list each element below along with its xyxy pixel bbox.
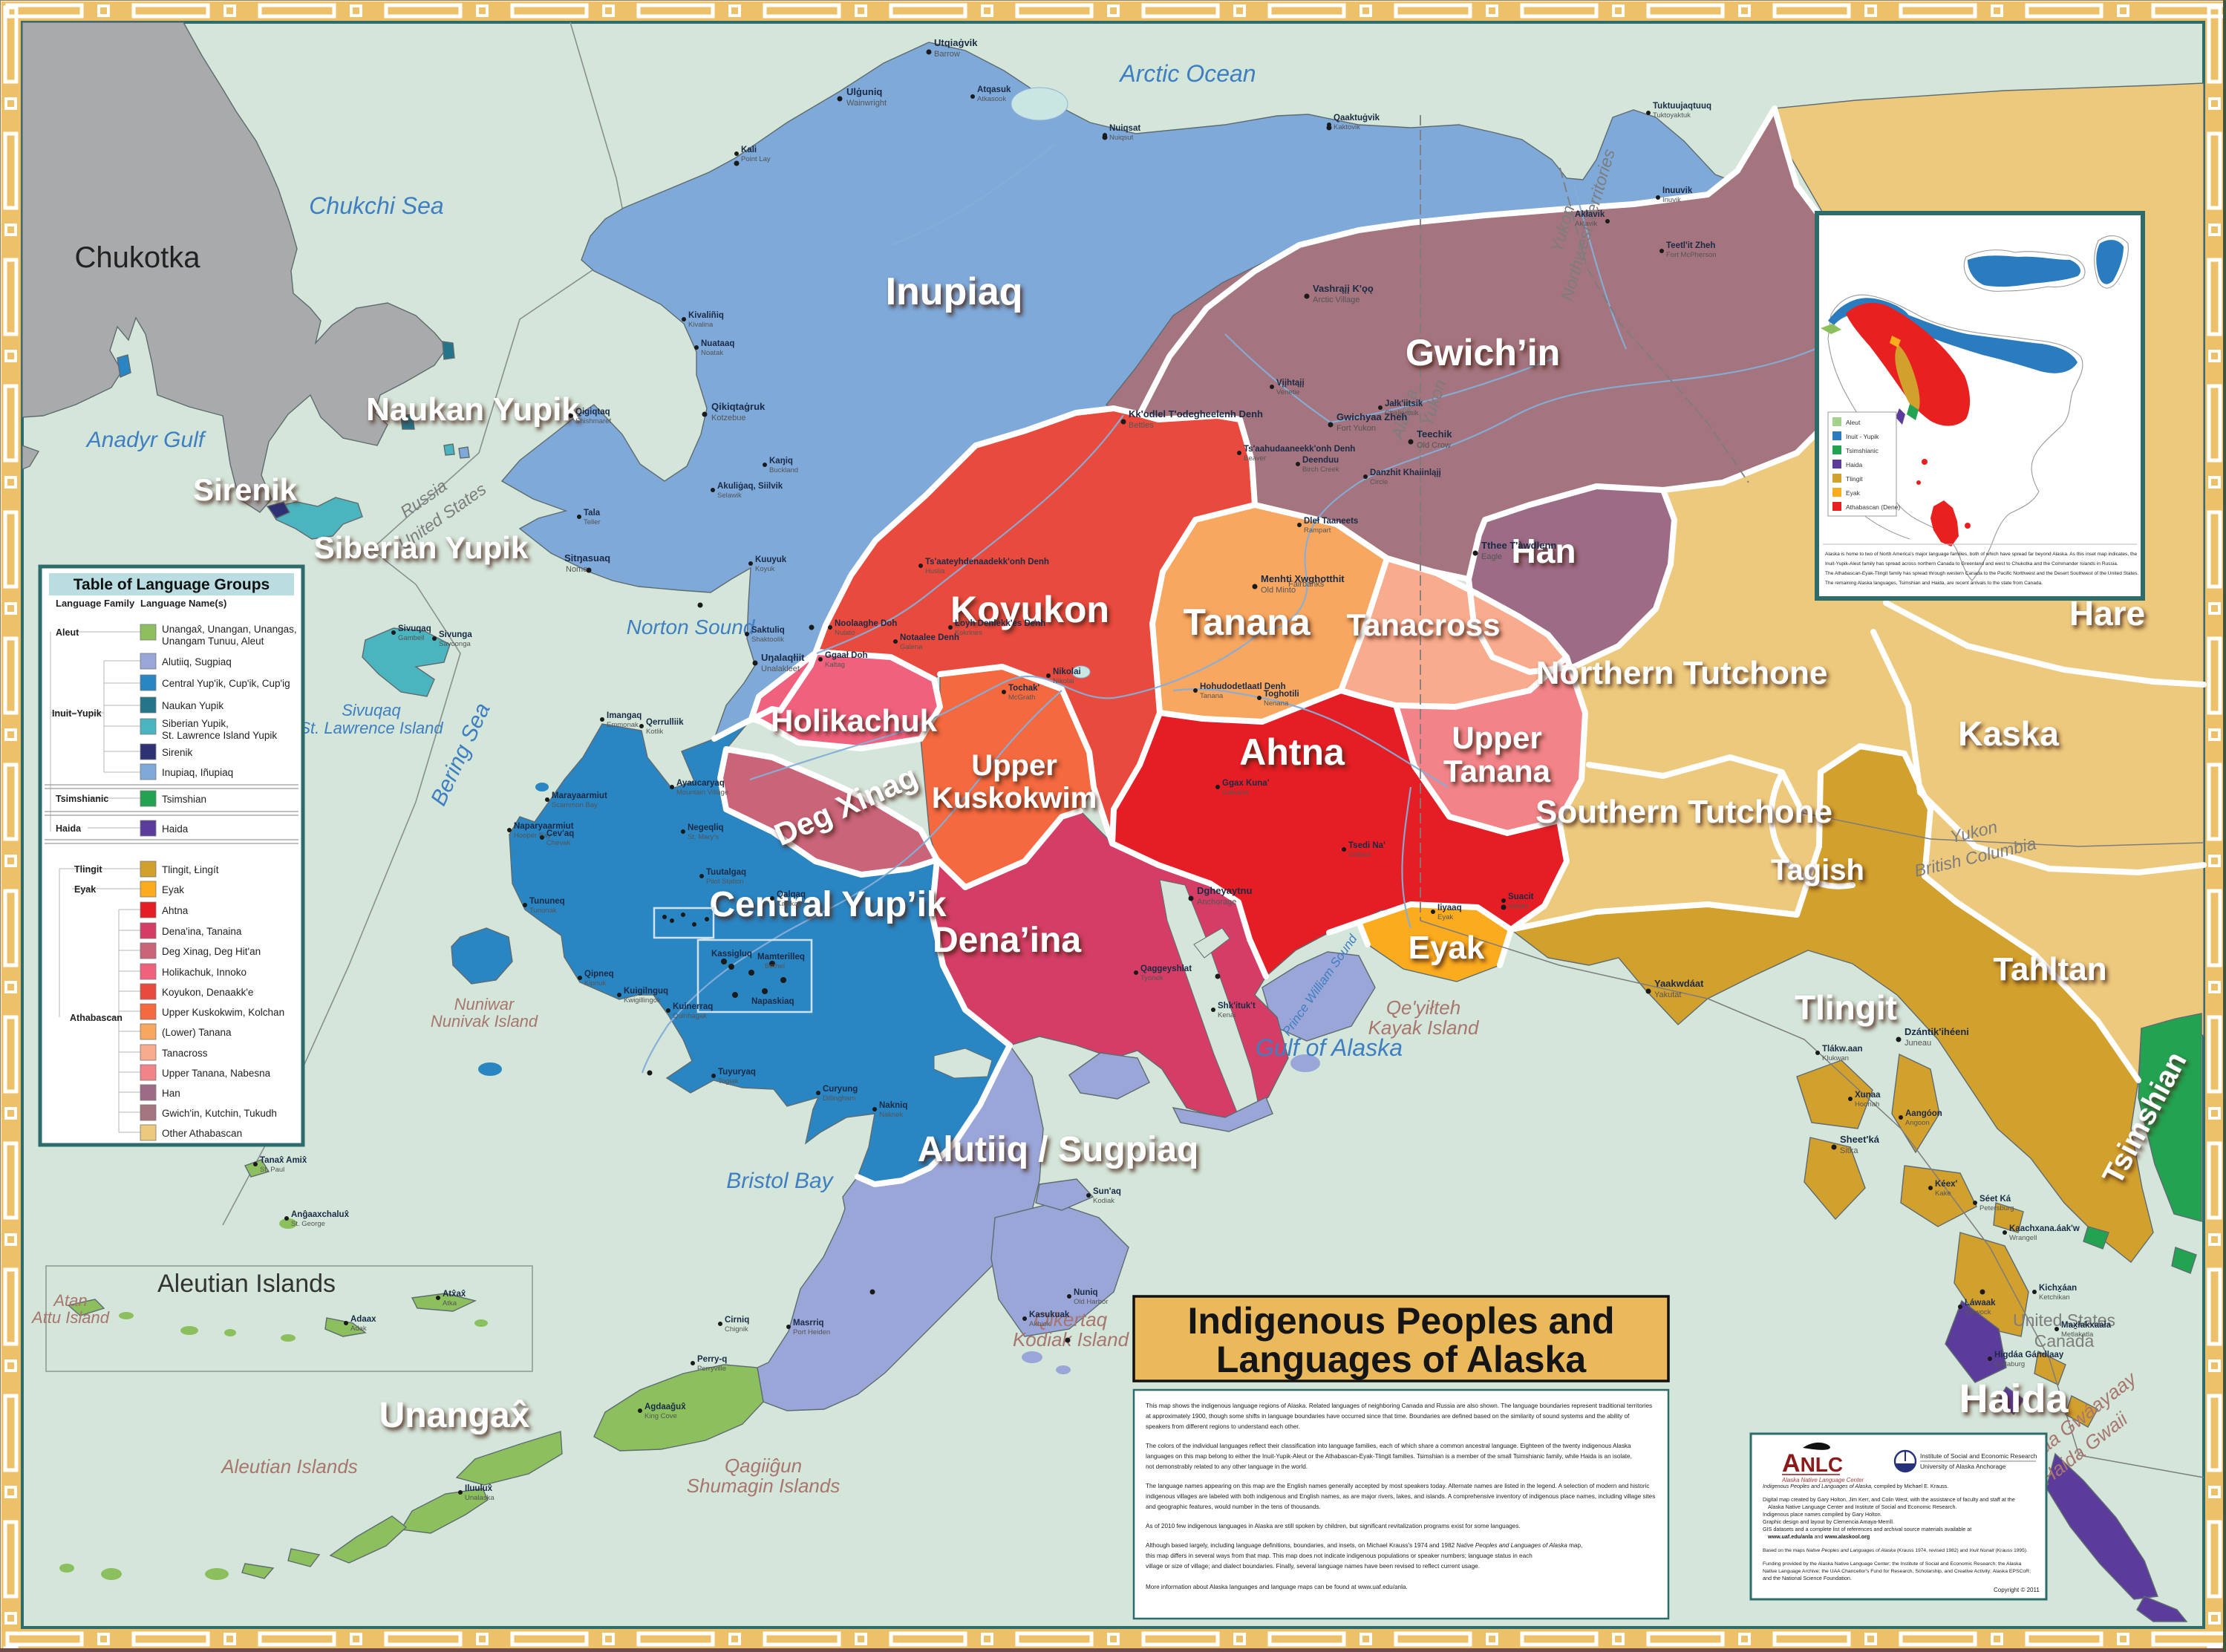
svg-text:Kichx̱áan: Kichx̱áan <box>2039 1284 2077 1293</box>
svg-text:Based on the maps Native Peopl: Based on the maps Native Peoples and Lan… <box>1763 1548 2028 1553</box>
svg-text:Yakutat: Yakutat <box>1654 990 1682 999</box>
svg-text:Aleutian Islands: Aleutian Islands <box>157 1270 336 1298</box>
svg-text:Copyright © 2011: Copyright © 2011 <box>1994 1587 2040 1593</box>
svg-text:Nunivak Island: Nunivak Island <box>431 1012 538 1031</box>
svg-text:Athabascan (Dene): Athabascan (Dene) <box>1846 503 1900 511</box>
svg-text:Kaachxana.áak'w: Kaachxana.áak'w <box>2009 1224 2080 1233</box>
svg-text:Noolaaghe Doh: Noolaaghe Doh <box>835 619 897 628</box>
svg-text:Eagle: Eagle <box>1481 552 1502 561</box>
svg-text:Tlingit: Tlingit <box>1795 988 1897 1027</box>
svg-text:Kk'odlel T'odegheelenh Denh: Kk'odlel T'odegheelenh Denh <box>1129 408 1263 419</box>
svg-text:Tanana: Tanana <box>1443 754 1551 789</box>
svg-text:Teetl'it Zheh: Teetl'it Zheh <box>1666 241 1715 250</box>
svg-text:Utqiaġvik: Utqiaġvik <box>934 37 978 48</box>
svg-text:Tsedi Na': Tsedi Na' <box>1348 841 1385 850</box>
svg-text:Nuniwar: Nuniwar <box>454 995 515 1013</box>
svg-text:Upper: Upper <box>1452 720 1541 755</box>
svg-text:Vashrąįį K'ǫǫ: Vashrąįį K'ǫǫ <box>1313 283 1374 294</box>
svg-text:Venetie: Venetie <box>1276 388 1300 396</box>
svg-text:Ahtna: Ahtna <box>162 905 189 916</box>
svg-text:Tanacross: Tanacross <box>1347 607 1501 642</box>
svg-text:this map differs in several wa: this map differs in several ways from th… <box>1146 1553 1533 1559</box>
svg-text:Northern Tutchone: Northern Tutchone <box>1536 655 1828 691</box>
svg-text:Noatak: Noatak <box>701 349 723 357</box>
svg-text:Native Language Archive; the U: Native Language Archive; the UAA Chancel… <box>1763 1569 2031 1574</box>
svg-text:Sheet'ká: Sheet'ká <box>1840 1134 1880 1145</box>
svg-text:Togiak: Togiak <box>718 1077 739 1085</box>
svg-text:Kaltag: Kaltag <box>825 661 845 669</box>
svg-text:St. Lawrence Island: St. Lawrence Island <box>299 719 443 737</box>
svg-text:University of Alaska Anchorage: University of Alaska Anchorage <box>1920 1463 2006 1470</box>
svg-text:Sivunga: Sivunga <box>439 630 472 639</box>
svg-text:Nome: Nome <box>566 565 587 574</box>
svg-text:Tochak': Tochak' <box>1008 684 1039 693</box>
svg-text:Although based largely, includ: Although based largely, including langua… <box>1146 1542 1582 1549</box>
svg-text:Kali: Kali <box>741 146 757 154</box>
svg-text:Kassigluq: Kassigluq <box>711 950 752 959</box>
svg-text:Tuktuujaqtuuq: Tuktuujaqtuuq <box>1653 102 1711 111</box>
svg-text:As of 2010 few indigenous lang: As of 2010 few indigenous languages in A… <box>1146 1523 1521 1529</box>
svg-text:Fairbanks: Fairbanks <box>1288 580 1325 589</box>
svg-text:The Athabascan-Eyak-Tlingit fa: The Athabascan-Eyak-Tlingit family has s… <box>1825 571 2138 576</box>
svg-text:Kokrines: Kokrines <box>955 629 982 637</box>
svg-text:Tanax̂ Amix̂: Tanax̂ Amix̂ <box>260 1156 307 1165</box>
svg-text:Old Crow: Old Crow <box>1417 441 1451 450</box>
svg-text:Chukotka: Chukotka <box>75 241 201 274</box>
svg-text:Graphic design and layout by C: Graphic design and layout by Clemencia A… <box>1763 1518 1894 1525</box>
svg-text:Ketchikan: Ketchikan <box>2039 1293 2070 1302</box>
svg-text:Buckland: Buckland <box>769 466 798 474</box>
svg-text:Napaskiaq: Napaskiaq <box>751 997 794 1006</box>
svg-text:Dena'ina, Tanaina: Dena'ina, Tanaina <box>162 926 242 937</box>
svg-text:Tagish: Tagish <box>1771 854 1864 887</box>
svg-text:Digital map created by Gary Ho: Digital map created by Gary Holton, Jim … <box>1763 1496 2015 1503</box>
svg-text:Ggaał Doh: Ggaał Doh <box>825 651 868 660</box>
svg-text:Eyak: Eyak <box>1846 489 1861 497</box>
svg-text:Kuigilnguq: Kuigilnguq <box>624 987 668 996</box>
svg-text:Tununeq: Tununeq <box>529 897 565 906</box>
svg-text:Sirenik: Sirenik <box>162 747 193 758</box>
svg-text:Atqasuk: Atqasuk <box>977 85 1011 94</box>
svg-text:Hooper Bay: Hooper Bay <box>514 832 551 840</box>
svg-text:Nuiqsat: Nuiqsat <box>1109 124 1140 133</box>
svg-text:This map shows the indigenous: This map shows the indigenous language r… <box>1146 1403 1652 1409</box>
svg-text:Tununak: Tununak <box>529 907 557 915</box>
svg-text:village or size of village; an: village or size of village; and dialect … <box>1146 1563 1480 1570</box>
svg-text:Perryville: Perryville <box>697 1365 726 1373</box>
svg-text:Tlákw.aan: Tlákw.aan <box>1822 1045 1863 1054</box>
svg-text:Central Yup’ik: Central Yup’ik <box>709 885 947 924</box>
svg-text:Sivuqaq: Sivuqaq <box>398 624 431 633</box>
svg-text:St. George: St. George <box>291 1220 325 1228</box>
svg-text:Negeqliq: Negeqliq <box>688 823 724 832</box>
svg-text:Kaktovik: Kaktovik <box>1334 123 1360 131</box>
svg-text:Dzántik'ihéeni: Dzántik'ihéeni <box>1904 1026 1969 1037</box>
svg-text:Unalaska: Unalaska <box>465 1494 495 1502</box>
svg-text:Indigenous Peoples and Languag: Indigenous Peoples and Languages of Alas… <box>1763 1483 1948 1489</box>
svg-text:Kéex': Kéex' <box>1935 1180 1957 1189</box>
svg-text:Deenduu: Deenduu <box>1302 456 1339 465</box>
svg-text:The remaining Alaska languages: The remaining Alaska languages, Tsimshia… <box>1825 581 2043 586</box>
svg-text:Anchorage: Anchorage <box>1197 898 1236 907</box>
svg-text:Kake: Kake <box>1935 1189 1951 1198</box>
svg-text:Kipnuk: Kipnuk <box>584 979 606 987</box>
svg-text:Séet Ká: Séet Ká <box>1979 1195 2011 1204</box>
svg-text:Selawik: Selawik <box>717 492 742 500</box>
svg-text:Qikiqtaġruk: Qikiqtaġruk <box>711 401 766 412</box>
svg-text:Teechik: Teechik <box>1417 428 1452 440</box>
svg-text:Old Harbor: Old Harbor <box>1074 1298 1108 1306</box>
svg-text:Tsimshianic: Tsimshianic <box>1846 447 1879 454</box>
svg-text:Mountain Village: Mountain Village <box>676 789 728 797</box>
svg-text:Mamterilleq: Mamterilleq <box>757 953 805 962</box>
svg-text:Kuskokwim: Kuskokwim <box>932 782 1097 814</box>
svg-text:Teller: Teller <box>584 518 601 526</box>
svg-text:Sitŋasuaq: Sitŋasuaq <box>564 552 610 564</box>
svg-text:Qigiqtaq: Qigiqtaq <box>575 408 610 417</box>
svg-text:Qaaktuġvik: Qaaktuġvik <box>1334 114 1380 123</box>
svg-text:Wrangell: Wrangell <box>2009 1234 2037 1242</box>
svg-text:Tsimshianic: Tsimshianic <box>56 794 108 804</box>
svg-text:Kotlik: Kotlik <box>646 728 663 736</box>
svg-text:Tthee T'àwdlenn: Tthee T'àwdlenn <box>1481 540 1556 551</box>
svg-text:Petersburg: Petersburg <box>1979 1204 2014 1212</box>
svg-text:The colors of the individual l: The colors of the individual languages r… <box>1146 1443 1631 1449</box>
svg-text:Kivaliñiq: Kivaliñiq <box>688 311 724 320</box>
svg-text:Tahltan: Tahltan <box>1993 951 2106 987</box>
svg-text:Unangax̂, Unangan, Unangas,: Unangax̂, Unangan, Unangas, <box>162 624 297 635</box>
svg-text:Aklavik: Aklavik <box>1575 220 1597 228</box>
svg-text:Pilot Station: Pilot Station <box>706 878 744 886</box>
svg-text:Norton Sound: Norton Sound <box>627 616 756 639</box>
svg-text:Gambell: Gambell <box>398 634 424 642</box>
svg-text:languages on this map belong t: languages on this map belong to either t… <box>1146 1453 1632 1460</box>
svg-text:Koyukon, Denaakk'e: Koyukon, Denaakk'e <box>162 987 253 998</box>
svg-text:Chalkyitsik: Chalkyitsik <box>1385 409 1419 417</box>
svg-text:Chukchi Sea: Chukchi Sea <box>309 192 443 219</box>
svg-text:Chignik: Chignik <box>725 1325 748 1333</box>
svg-text:Kasukuak: Kasukuak <box>1029 1310 1070 1319</box>
svg-text:Dleł Taaneets: Dleł Taaneets <box>1304 517 1358 526</box>
svg-text:Inupiaq, Iñupiaq: Inupiaq, Iñupiaq <box>162 767 233 778</box>
svg-text:Tuutalgaq: Tuutalgaq <box>706 868 746 877</box>
svg-text:Inuit-Yupik-Aleut family has s: Inuit-Yupik-Aleut family has spread acro… <box>1825 561 2118 567</box>
svg-text:Shk'ituk't: Shk'ituk't <box>1218 1002 1256 1011</box>
svg-text:Valdez: Valdez <box>1508 902 1530 910</box>
svg-text:Nuniq: Nuniq <box>1074 1288 1098 1297</box>
svg-text:St. Mary's: St. Mary's <box>688 833 719 841</box>
svg-text:Bettles: Bettles <box>1129 421 1154 430</box>
svg-text:Juneau: Juneau <box>1904 1039 1931 1048</box>
svg-text:Nuiqsut: Nuiqsut <box>1109 134 1134 142</box>
svg-text:Gwich'in, Kutchin, Tukudh: Gwich'in, Kutchin, Tukudh <box>162 1108 277 1119</box>
svg-text:at approximately 1900, though: at approximately 1900, though some shift… <box>1146 1413 1630 1420</box>
svg-text:(Lower) Tanana: (Lower) Tanana <box>162 1027 232 1038</box>
svg-text:Emmonak: Emmonak <box>607 721 639 729</box>
svg-text:Upper: Upper <box>971 749 1057 782</box>
svg-text:Klawock: Klawock <box>1965 1308 1991 1316</box>
svg-text:Athabascan: Athabascan <box>70 1013 123 1023</box>
svg-text:Qe'yiłteh: Qe'yiłteh <box>1386 996 1460 1019</box>
svg-text:indigenous villages are labele: indigenous villages are labeled with bot… <box>1146 1493 1655 1500</box>
svg-text:Eyak: Eyak <box>74 884 96 895</box>
svg-text:Holikachuk: Holikachuk <box>771 703 938 738</box>
svg-text:Other Athabascan: Other Athabascan <box>162 1128 242 1139</box>
svg-text:Fort Yukon: Fort Yukon <box>1336 424 1376 433</box>
svg-text:Shishmaref: Shishmaref <box>575 417 611 425</box>
svg-text:Tlingit: Tlingit <box>1846 475 1863 483</box>
svg-text:Nikolai: Nikolai <box>1053 667 1081 676</box>
svg-text:Chevak: Chevak <box>546 839 570 847</box>
svg-text:St. Paul: St. Paul <box>260 1166 284 1174</box>
svg-text:Kaska: Kaska <box>1958 714 2059 753</box>
svg-text:Perry-q: Perry-q <box>697 1355 727 1364</box>
svg-text:Unangax̂: Unangax̂ <box>379 1396 530 1435</box>
svg-text:The language names appearing o: The language names appearing on this map… <box>1146 1483 1649 1489</box>
svg-text:Aleut: Aleut <box>56 627 79 638</box>
svg-text:Ayaucaryaq: Ayaucaryaq <box>676 779 725 788</box>
svg-text:Nenana: Nenana <box>1264 699 1289 708</box>
svg-text:Nulato: Nulato <box>835 629 855 637</box>
svg-text:Tanana: Tanana <box>1183 601 1311 643</box>
svg-text:Nakniq: Nakniq <box>879 1101 907 1110</box>
svg-text:Tanacross: Tanacross <box>162 1048 208 1059</box>
svg-text:Kalskag: Kalskag <box>777 900 802 908</box>
svg-text:Vįįhtąįį: Vįįhtąįį <box>1276 379 1305 388</box>
svg-text:Iiyaaq: Iiyaaq <box>1437 904 1462 912</box>
svg-text:Deg Xinag, Deg Hit'an: Deg Xinag, Deg Hit'an <box>162 946 261 957</box>
svg-text:Kwigillingok: Kwigillingok <box>624 996 661 1005</box>
svg-text:Alutiiq / Sugpiaq: Alutiiq / Sugpiaq <box>918 1130 1199 1169</box>
svg-text:Bristol Bay: Bristol Bay <box>726 1169 834 1193</box>
svg-text:Aleutian Islands: Aleutian Islands <box>220 1455 358 1478</box>
svg-text:Suacit: Suacit <box>1508 892 1534 901</box>
svg-text:Tala: Tala <box>584 509 601 518</box>
svg-text:Eyak: Eyak <box>1409 930 1485 966</box>
svg-text:Kenai: Kenai <box>1218 1011 1236 1019</box>
svg-text:Koyuk: Koyuk <box>755 565 775 573</box>
svg-text:Anĝaaxchalux̂: Anĝaaxchalux̂ <box>291 1210 350 1219</box>
svg-text:Upper Tanana, Nabesna: Upper Tanana, Nabesna <box>162 1068 271 1079</box>
svg-text:Sitka: Sitka <box>1840 1146 1858 1155</box>
svg-text:Agdaaǧux̂: Agdaaǧux̂ <box>644 1403 686 1411</box>
svg-text:Sun'aq: Sun'aq <box>1093 1187 1121 1196</box>
svg-text:Naukan Yupik: Naukan Yupik <box>162 700 223 711</box>
svg-text:Hydaburg: Hydaburg <box>1994 1360 2025 1368</box>
svg-text:Indigenous place names compile: Indigenous place names compiled by Gary … <box>1763 1511 1882 1518</box>
svg-text:Iluulux̂: Iluulux̂ <box>465 1484 493 1493</box>
svg-text:Cev'aq: Cev'aq <box>546 829 574 838</box>
svg-text:Wainwright: Wainwright <box>846 99 887 108</box>
svg-text:Imangaq: Imangaq <box>607 711 642 720</box>
svg-text:Eyak: Eyak <box>162 884 184 895</box>
svg-text:Ulġuniq: Ulġuniq <box>846 86 882 97</box>
svg-text:Gulkana: Gulkana <box>1222 789 1249 797</box>
svg-text:Tyonek: Tyonek <box>1140 974 1163 982</box>
svg-text:Adaax: Adaax <box>350 1315 376 1324</box>
svg-text:Huslia: Huslia <box>925 567 945 575</box>
svg-text:Toghotili: Toghotili <box>1264 690 1299 699</box>
svg-text:Naukan Yupik: Naukan Yupik <box>366 391 580 428</box>
svg-text:Unangam Tunuu, Aleut: Unangam Tunuu, Aleut <box>162 636 264 647</box>
svg-text:Notaalee Denh: Notaalee Denh <box>900 633 959 642</box>
svg-text:Nuataaq: Nuataaq <box>701 339 734 348</box>
svg-text:and geographic features, would: and geographic features, would number in… <box>1146 1504 1321 1510</box>
svg-text:Port Heiden: Port Heiden <box>793 1328 830 1336</box>
svg-text:Max̱łakxaała: Max̱łakxaała <box>2061 1321 2112 1330</box>
svg-text:Point Lay: Point Lay <box>741 155 771 163</box>
svg-text:Inuuvik: Inuuvik <box>1662 186 1693 195</box>
svg-text:Kuuyuk: Kuuyuk <box>755 555 787 564</box>
svg-text:Unalakleet: Unalakleet <box>761 665 800 673</box>
svg-text:Klukwan: Klukwan <box>1822 1054 1849 1062</box>
svg-text:Holikachuk, Innoko: Holikachuk, Innoko <box>162 967 247 978</box>
svg-text:Gwich’in: Gwich’in <box>1406 332 1560 373</box>
svg-text:Ahtna: Ahtna <box>1239 731 1345 773</box>
svg-text:Kuinerraq: Kuinerraq <box>673 1002 713 1011</box>
svg-text:Aangóon: Aangóon <box>1905 1109 1942 1118</box>
svg-text:Shaktoolik: Shaktoolik <box>751 636 784 644</box>
svg-text:Haida: Haida <box>1959 1377 2069 1421</box>
svg-text:Łoyh Denlekk'es Denh: Łoyh Denlekk'es Denh <box>955 619 1045 628</box>
svg-text:Xunaa: Xunaa <box>1855 1091 1881 1100</box>
svg-text:Akłavik: Akłavik <box>1575 210 1605 219</box>
svg-text:ANLC: ANLC <box>1782 1449 1843 1478</box>
svg-text:Tlingit, Łingít: Tlingit, Łingít <box>162 864 219 875</box>
svg-text:Qagiiĝun: Qagiiĝun <box>725 1455 802 1477</box>
svg-text:Funding provided by the Alaska: Funding provided by the Alaska Native La… <box>1763 1561 2022 1567</box>
svg-text:Marayaarmiut: Marayaarmiut <box>552 791 607 800</box>
svg-text:More information about Alaska: More information about Alaska languages … <box>1146 1584 1408 1590</box>
svg-text:Alutiiq, Sugpiaq: Alutiiq, Sugpiaq <box>162 656 232 667</box>
svg-text:Barrow: Barrow <box>934 50 960 59</box>
svg-text:Circle: Circle <box>1370 478 1388 486</box>
svg-text:McGrath: McGrath <box>1008 693 1035 702</box>
svg-text:Dillingham: Dillingham <box>823 1094 855 1103</box>
svg-text:Adak: Adak <box>350 1325 367 1333</box>
svg-text:Higdáa Gándlaay: Higdáa Gándlaay <box>1994 1351 2064 1359</box>
svg-text:GIS datasets and a complete li: GIS datasets and a complete list of refe… <box>1763 1526 1971 1532</box>
svg-text:Kaŋiq: Kaŋiq <box>769 457 793 466</box>
svg-text:Alaska Native Language Center: Alaska Native Language Center and Instit… <box>1768 1504 1957 1510</box>
svg-text:Alaska is home to two of North: Alaska is home to two of North America's… <box>1825 552 2138 557</box>
svg-text:Attu Island: Attu Island <box>30 1308 110 1327</box>
svg-text:Qerrulliik: Qerrulliik <box>646 718 684 727</box>
svg-text:www.uaf.edu/anla and www.alask: www.uaf.edu/anla and www.alaskool.org <box>1767 1533 1870 1540</box>
svg-text:and the National Science Found: and the National Science Foundation. <box>1763 1575 1852 1581</box>
svg-text:Han: Han <box>162 1088 180 1099</box>
svg-text:Akuliġaq, Siilvik: Akuliġaq, Siilvik <box>717 482 783 491</box>
svg-text:Haida: Haida <box>56 823 82 834</box>
svg-text:Arctic Ocean: Arctic Ocean <box>1118 60 1256 87</box>
svg-text:Atan: Atan <box>52 1291 87 1310</box>
svg-text:Upper Kuskokwim, Kolchan: Upper Kuskokwim, Kolchan <box>162 1007 284 1018</box>
svg-text:Sivuqaq: Sivuqaq <box>342 701 401 719</box>
svg-text:Inupiaq: Inupiaq <box>886 270 1023 313</box>
svg-text:Saktuliq: Saktuliq <box>751 626 785 635</box>
svg-text:Siberian Yupik,: Siberian Yupik, <box>162 718 229 729</box>
svg-text:Jałk'iitsik: Jałk'iitsik <box>1385 399 1423 408</box>
svg-text:Naknek: Naknek <box>879 1111 903 1119</box>
svg-text:Kodiak Island: Kodiak Island <box>1013 1328 1130 1351</box>
svg-text:Tanana: Tanana <box>1200 692 1224 700</box>
svg-text:Inuit–Yupik: Inuit–Yupik <box>52 708 102 719</box>
svg-text:Rampart: Rampart <box>1304 526 1331 535</box>
svg-text:St. Lawrence Island Yupik: St. Lawrence Island Yupik <box>162 730 277 741</box>
svg-text:Láwaak: Láwaak <box>1965 1299 1996 1307</box>
svg-text:Danzhit Khaiinląįį: Danzhit Khaiinląįį <box>1370 468 1441 477</box>
svg-text:Atka: Atka <box>443 1299 457 1307</box>
svg-text:Arctic Village: Arctic Village <box>1313 296 1360 304</box>
svg-text:Bethel: Bethel <box>765 962 785 970</box>
svg-text:Scammon Bay: Scammon Bay <box>552 801 598 809</box>
svg-text:Masrriq: Masrriq <box>793 1319 824 1328</box>
svg-text:Shumagin Islands: Shumagin Islands <box>687 1475 841 1497</box>
svg-text:Akhiok: Akhiok <box>1029 1320 1051 1328</box>
svg-text:Nikolai: Nikolai <box>1053 677 1074 685</box>
svg-text:Tuyuryaq: Tuyuryaq <box>718 1068 756 1077</box>
svg-text:Savoonga: Savoonga <box>439 640 471 648</box>
svg-text:Cirniq: Cirniq <box>725 1316 749 1325</box>
svg-text:Language Family: Language Family <box>56 598 135 609</box>
svg-text:Languages of Alaska: Languages of Alaska <box>1216 1339 1587 1380</box>
svg-text:Kodiak: Kodiak <box>1093 1197 1114 1205</box>
svg-text:Atx̂ax̂: Atx̂ax̂ <box>443 1290 466 1299</box>
svg-text:Dgheyaytnu: Dgheyaytnu <box>1197 885 1252 896</box>
svg-text:speakers from different region: speakers from different regions to under… <box>1146 1423 1300 1430</box>
svg-text:Kivalina: Kivalina <box>688 321 714 329</box>
svg-text:Inuvik: Inuvik <box>1662 196 1681 204</box>
svg-text:Yaakwdáat: Yaakwdáat <box>1654 978 1704 989</box>
svg-text:Beaver: Beaver <box>1244 454 1266 463</box>
svg-text:Uŋalaqłiit: Uŋalaqłiit <box>761 652 805 663</box>
svg-text:Fort McPherson: Fort McPherson <box>1666 251 1717 259</box>
svg-text:Quinhagak: Quinhagak <box>673 1012 707 1020</box>
svg-text:Han: Han <box>1512 532 1576 570</box>
svg-text:Central Yup'ik, Cup'ik, Cup'ig: Central Yup'ik, Cup'ik, Cup'ig <box>162 678 290 689</box>
svg-text:Kotzebue: Kotzebue <box>711 414 745 422</box>
svg-text:Tlingit: Tlingit <box>74 864 102 875</box>
svg-text:Indigenous Peoples and: Indigenous Peoples and <box>1187 1300 1614 1342</box>
svg-text:Atkasook: Atkasook <box>977 95 1006 103</box>
svg-text:Eyak: Eyak <box>1437 913 1453 921</box>
svg-text:Anadyr Gulf: Anadyr Gulf <box>85 428 206 452</box>
svg-text:Sirenik: Sirenik <box>193 472 298 507</box>
svg-text:Kayak Island: Kayak Island <box>1368 1016 1480 1039</box>
svg-text:Qipneq: Qipneq <box>584 970 614 979</box>
svg-text:Hoonah: Hoonah <box>1855 1100 1879 1109</box>
svg-text:not demonstrably related to an: not demonstrably related to any other la… <box>1146 1463 1308 1470</box>
svg-text:Haida: Haida <box>1846 461 1862 468</box>
svg-text:Ts'aahudaaneekk'onh Denh: Ts'aahudaaneekk'onh Denh <box>1244 445 1355 454</box>
svg-text:Chitina: Chitina <box>1348 851 1371 859</box>
svg-text:Qaggeyshlat: Qaggeyshlat <box>1140 964 1192 973</box>
svg-text:Aleut: Aleut <box>1846 419 1861 426</box>
svg-text:Angoon: Angoon <box>1905 1119 1930 1127</box>
svg-text:Tsimshian: Tsimshian <box>162 794 206 805</box>
svg-text:Galena: Galena <box>900 643 923 651</box>
svg-text:Table of Language Groups: Table of Language Groups <box>74 576 270 593</box>
svg-text:Tuktoyaktuk: Tuktoyaktuk <box>1653 111 1691 120</box>
svg-text:Inuit - Yupik: Inuit - Yupik <box>1846 433 1879 440</box>
svg-text:Curyung: Curyung <box>823 1085 858 1094</box>
svg-text:King Cove: King Cove <box>644 1412 677 1420</box>
svg-text:Dena’ina: Dena’ina <box>933 921 1081 960</box>
svg-text:Ts'aateyhdenaadekk'onh Denh: Ts'aateyhdenaadekk'onh Denh <box>925 558 1049 567</box>
svg-text:Haida: Haida <box>162 823 189 835</box>
svg-text:Qalqaq: Qalqaq <box>777 890 806 899</box>
svg-text:Language Name(s): Language Name(s) <box>140 598 226 609</box>
